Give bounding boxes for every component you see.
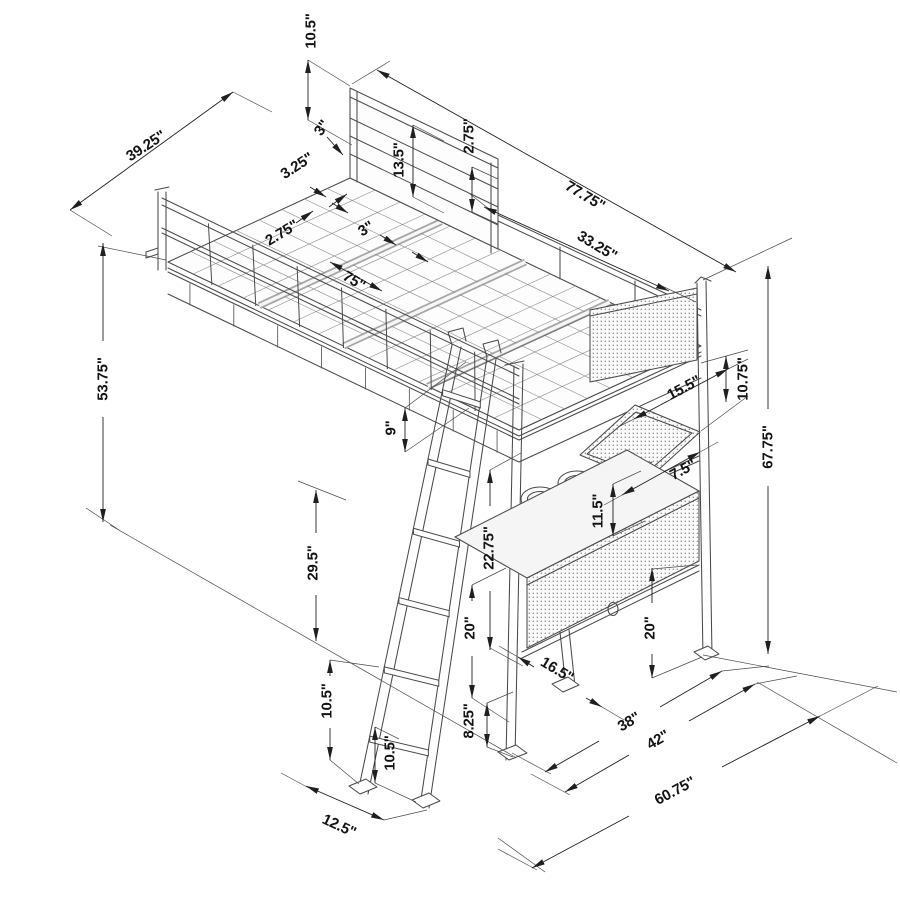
leader-3-top <box>327 137 343 155</box>
dim-label-2: 3" <box>311 117 334 139</box>
back-right-foot <box>694 646 719 660</box>
dim-label-24: 10.5" <box>319 683 336 718</box>
dim-label-17: 7.5" <box>667 456 699 484</box>
dim-label-25: 38" <box>615 709 644 735</box>
dim-label-19: 22.75" <box>481 526 498 570</box>
dim-42-a <box>565 755 629 792</box>
dim-label-30: 12.5" <box>319 811 358 841</box>
dim-label-26: 42" <box>644 727 673 753</box>
dim-label-4: 3.25" <box>278 149 317 183</box>
back-right-post <box>695 277 712 658</box>
loft-bed-dimension-drawing: 10.5"3"39.25"3.25"13.5"2.75"77.75"33.25"… <box>0 0 900 900</box>
dim-label-27: 8.25" <box>461 703 478 738</box>
dim-label-15: 10.75" <box>735 357 752 401</box>
dim-label-14: 15.5" <box>664 372 703 404</box>
ladder-feet <box>349 779 440 808</box>
dim-label-21: 20" <box>462 616 479 639</box>
dim-label-16: 67.75" <box>760 425 777 469</box>
dim-42-b <box>689 684 755 721</box>
dim-label-7: 77.75" <box>562 178 608 215</box>
dim-label-8: 33.25" <box>574 228 620 265</box>
dim-60-75-a <box>532 816 629 868</box>
dim-label-18: 11.5" <box>590 494 607 529</box>
dim-label-28: 10.5" <box>382 735 399 770</box>
dim-60-75-b <box>722 716 820 767</box>
dim-label-5: 13.5" <box>391 142 408 177</box>
dimension-drawing-page: 10.5"3"39.25"3.25"13.5"2.75"77.75"33.25"… <box>0 0 900 900</box>
dim-16-5-b <box>586 698 602 707</box>
dim-label-20: 29.5" <box>305 545 322 580</box>
dim-label-6: 2.75" <box>461 118 478 153</box>
dim-38-b <box>660 671 722 707</box>
front-left-post <box>146 187 169 270</box>
dim-label-13: 9" <box>383 420 400 435</box>
front-right-foot <box>498 745 527 760</box>
ladder-rung <box>370 736 429 756</box>
dim-38-a <box>545 741 599 772</box>
dim-label-1: 10.5" <box>303 13 320 48</box>
dim-label-3: 39.25" <box>123 127 169 165</box>
dim-16-5-a <box>518 657 534 667</box>
dim-label-29: 60.75" <box>652 773 698 808</box>
dim-label-22: 20" <box>642 616 659 639</box>
dim-label-12: 53.75" <box>95 357 112 401</box>
dim-12-5 <box>306 786 384 820</box>
